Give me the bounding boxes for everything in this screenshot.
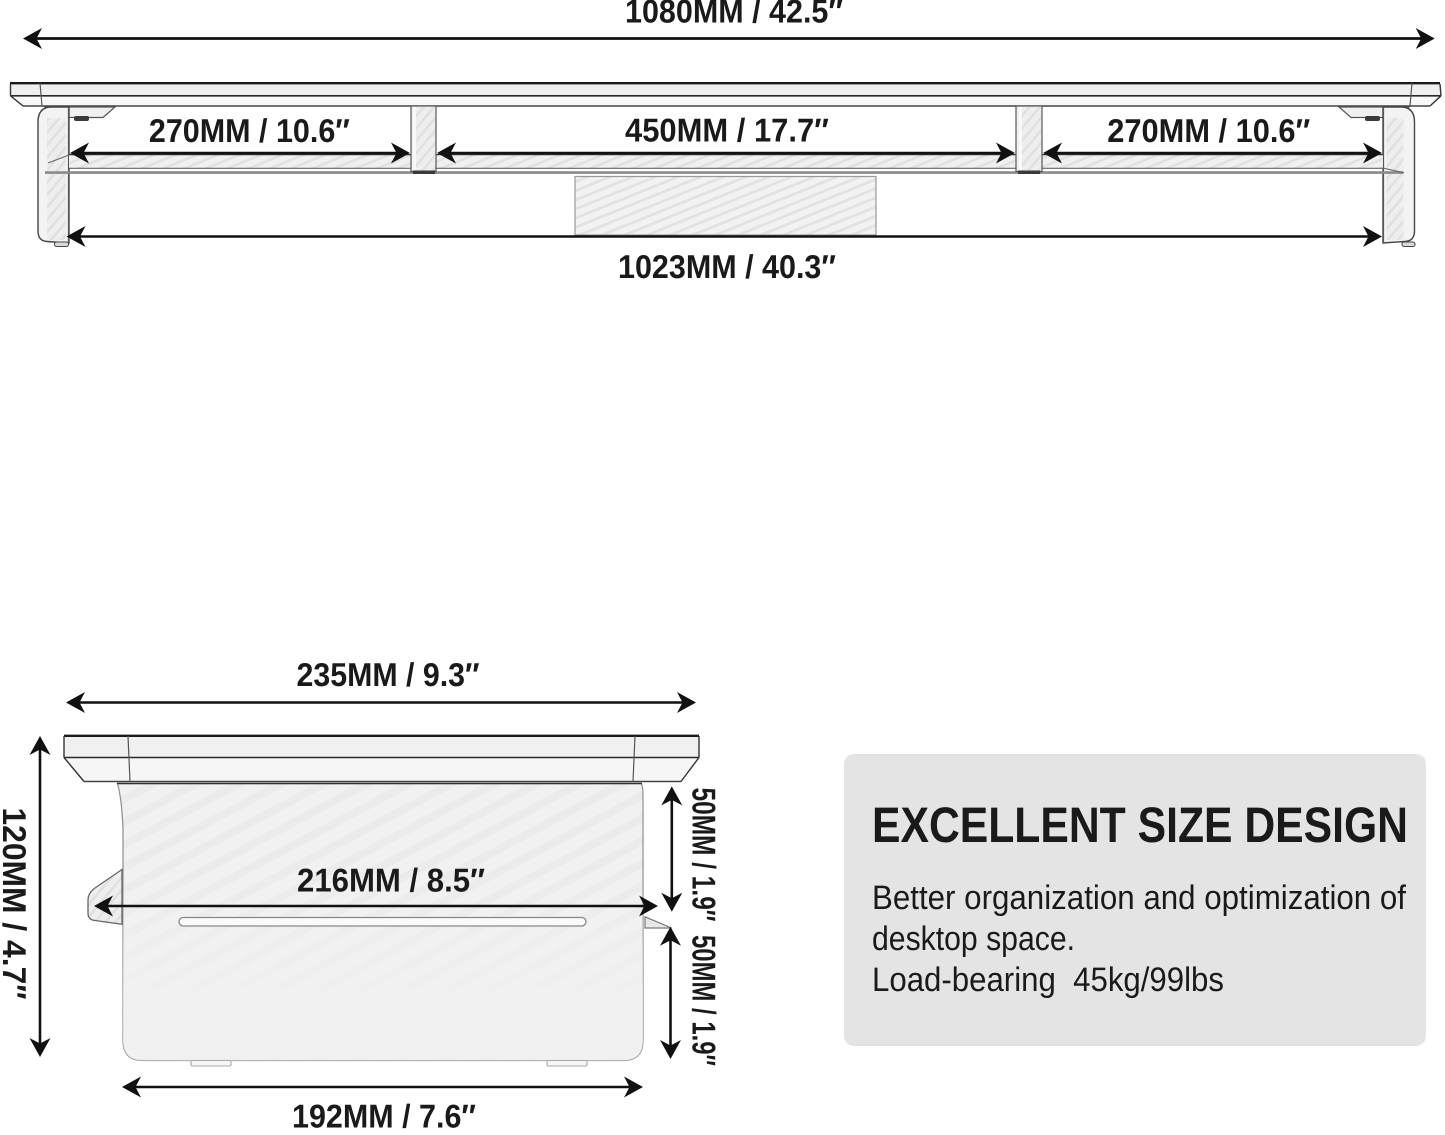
svg-text:270MM / 10.6″: 270MM / 10.6″ — [1107, 112, 1310, 149]
svg-text:120MM / 4.7″: 120MM / 4.7″ — [0, 808, 33, 1000]
svg-text:Better organization and optimi: Better organization and optimization of — [872, 879, 1407, 917]
svg-text:216MM / 8.5″: 216MM / 8.5″ — [297, 862, 485, 899]
svg-text:Load-bearing 45kg/99lbs: Load-bearing 45kg/99lbs — [872, 961, 1224, 999]
svg-text:450MM / 17.7″: 450MM / 17.7″ — [625, 112, 829, 149]
svg-text:1023MM / 40.3″: 1023MM / 40.3″ — [618, 248, 836, 285]
svg-text:1080MM / 42.5″: 1080MM / 42.5″ — [625, 0, 843, 30]
svg-text:235MM / 9.3″: 235MM / 9.3″ — [297, 656, 480, 693]
svg-text:192MM / 7.6″: 192MM / 7.6″ — [292, 1098, 476, 1135]
svg-text:270MM / 10.6″: 270MM / 10.6″ — [149, 112, 350, 149]
svg-text:50MM / 1.9″: 50MM / 1.9″ — [685, 935, 722, 1066]
svg-text:50MM / 1.9″: 50MM / 1.9″ — [685, 788, 722, 922]
svg-text:desktop space.: desktop space. — [872, 920, 1075, 958]
svg-text:EXCELLENT SIZE DESIGN: EXCELLENT SIZE DESIGN — [872, 797, 1408, 853]
